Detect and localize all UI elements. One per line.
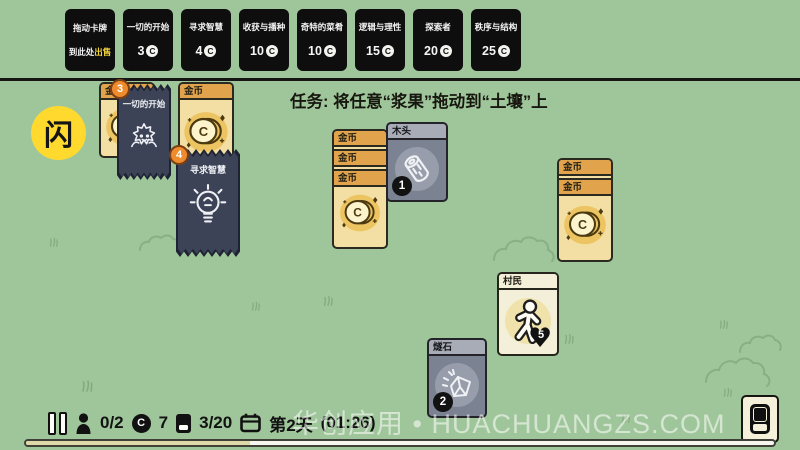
wood-card[interactable]: 木头 1 <box>386 122 448 202</box>
cardopedia-button[interactable] <box>741 395 779 443</box>
coin-icon: C <box>146 45 158 57</box>
buy-pack-logic-and-reason[interactable]: 逻辑与理性 15C <box>355 9 405 71</box>
pack-title: 寻求智慧 <box>190 163 226 176</box>
coin-icon: C <box>324 45 336 57</box>
coin-icon: C <box>266 45 278 57</box>
pause-button[interactable] <box>48 412 67 435</box>
buy-pack-reap-and-sow[interactable]: 收获与播种 10C <box>239 9 289 71</box>
buy-pack-curious-cuisine[interactable]: 奇特的菜肴 10C <box>297 9 347 71</box>
sell-highlight: 出售 <box>94 47 111 57</box>
coin-illustration <box>560 202 610 248</box>
deck-icon <box>750 404 770 434</box>
sell-area-card[interactable]: 拖动卡牌 到此处出售 <box>65 9 115 71</box>
coin-icon: C <box>204 45 216 57</box>
pack-cost-badge: 4 <box>169 145 189 165</box>
village-icon <box>124 118 164 154</box>
pack-cost-badge: 3 <box>110 79 130 99</box>
villager-count: 0/2 <box>100 413 124 433</box>
site-watermark: 华创应用 • HUACHUANGZS.COM <box>292 402 725 441</box>
calendar-icon <box>240 413 261 433</box>
coin-illustration <box>336 191 384 235</box>
pack-title: 一切的开始 <box>123 98 166 110</box>
coin-card-stack[interactable]: 金币 金币 金币 <box>332 129 388 249</box>
day-progress-fill <box>26 441 250 445</box>
buy-pack-humble-beginnings[interactable]: 一切的开始 3C <box>123 9 173 71</box>
pack-seeking-wisdom[interactable]: 寻求智慧 <box>176 149 240 257</box>
coin-icon: C <box>382 45 394 57</box>
coin-count-icon: C <box>132 414 151 433</box>
buy-pack-explorers[interactable]: 探索者 20C <box>413 9 463 71</box>
villager-count-icon <box>75 413 92 434</box>
task-text: 任务: 将任意“浆果”拖动到“土壤”上 <box>290 88 548 112</box>
sell-line-2: 到此处出售 <box>69 47 112 57</box>
health-badge: ♥ 5 <box>528 327 554 353</box>
buy-pack-seeking-wisdom[interactable]: 寻求智慧 4C <box>181 9 231 71</box>
villager-card[interactable]: 村民 ♥ 5 <box>497 272 559 356</box>
game-screen: C <box>0 0 800 450</box>
coin-icon: C <box>498 45 510 57</box>
card-count-icon <box>176 414 191 433</box>
buy-pack-order-and-structure[interactable]: 秩序与结构 25C <box>471 9 521 71</box>
coin-count: 7 <box>159 413 168 433</box>
stack-count-badge: 1 <box>392 176 412 196</box>
coin-icon: C <box>440 45 452 57</box>
sell-line-1: 拖动卡牌 <box>73 23 107 33</box>
lightbulb-icon <box>186 182 230 234</box>
coin-card-stack[interactable]: 金币 金币 <box>557 158 613 262</box>
card-count: 3/20 <box>199 413 232 433</box>
pack-humble-beginnings[interactable]: 一切的开始 <box>117 84 171 180</box>
shanwan-watermark-logo: 闪 <box>31 106 86 160</box>
